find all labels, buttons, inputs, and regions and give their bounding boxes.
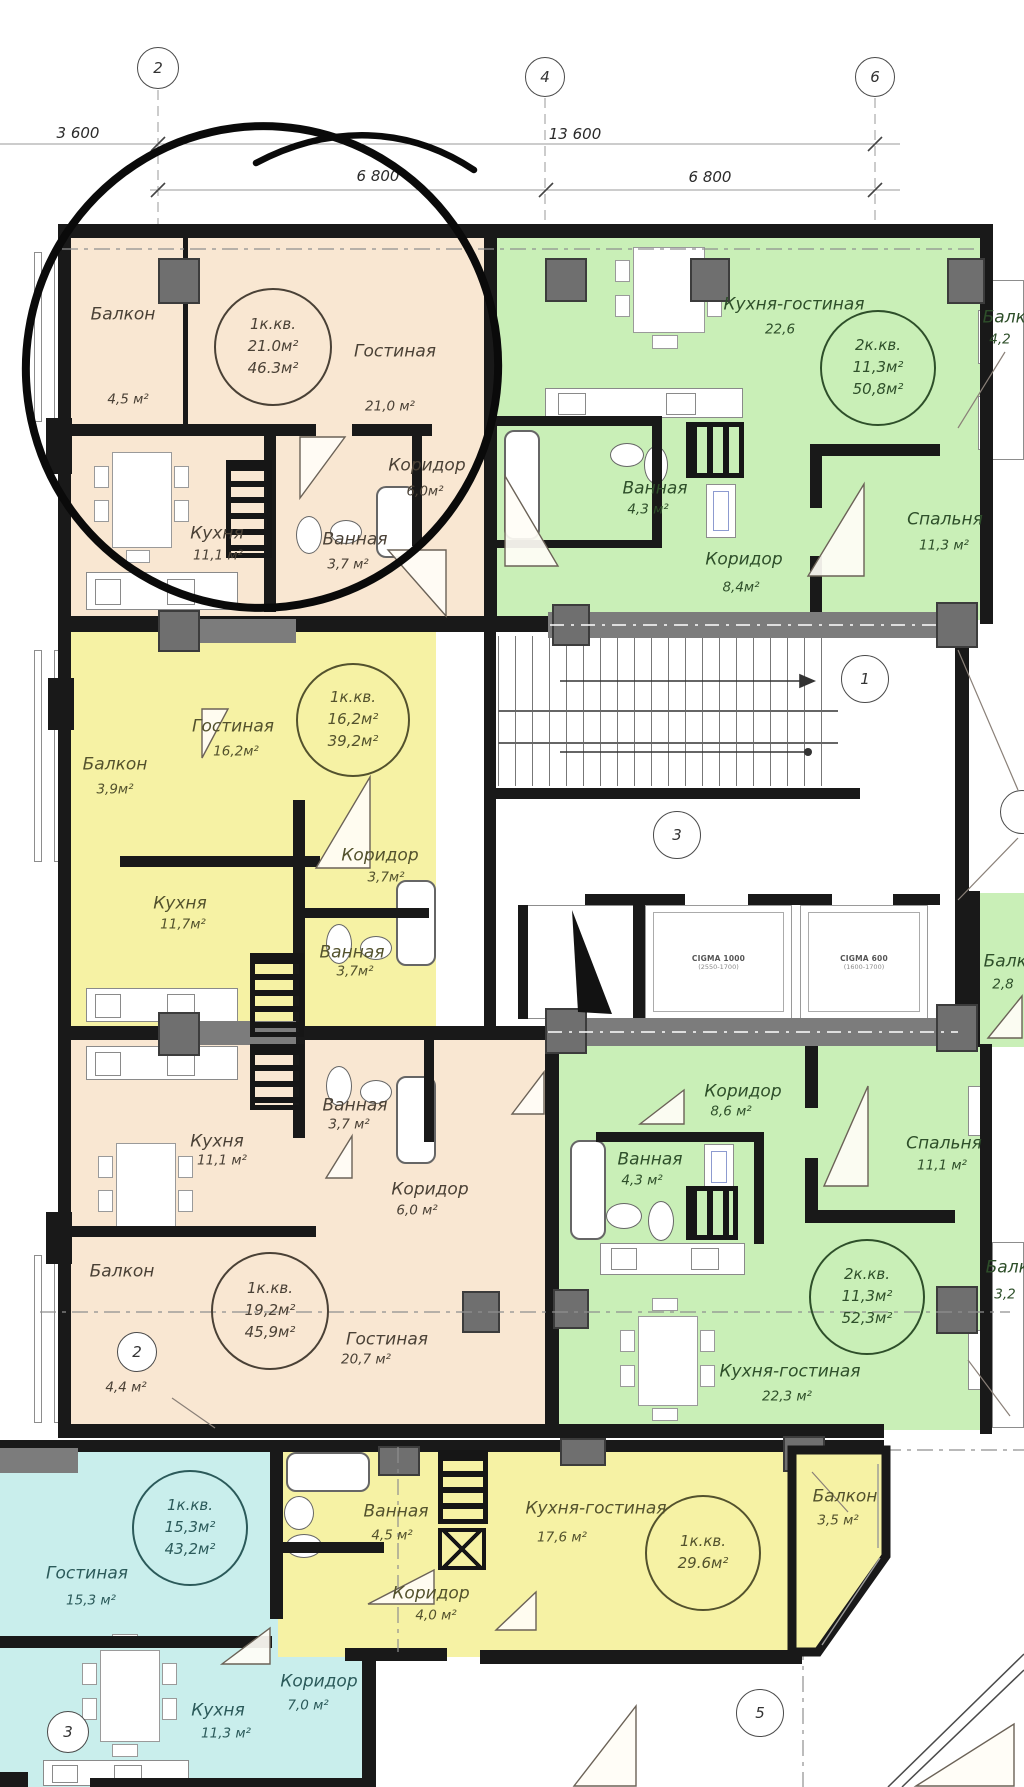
handwritten-selection-ellipse bbox=[0, 0, 1024, 1787]
floor-plan: CIGMA 1000 (2550-1700) CIGMA 600 (1600-1… bbox=[0, 0, 1024, 1787]
